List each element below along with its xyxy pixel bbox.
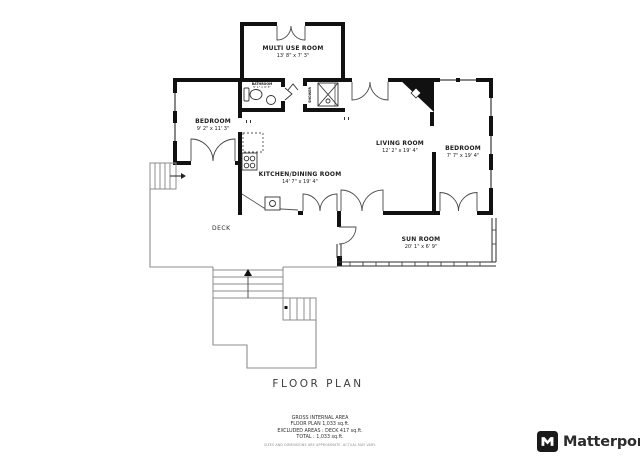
room-dims: 14' 7" x 19' 4" [259, 179, 342, 185]
shower-icon [318, 83, 338, 106]
room-name: BEDROOM [195, 118, 231, 126]
deck-outline [150, 189, 337, 368]
stairs-wide [213, 269, 283, 298]
opening-ticks [246, 117, 349, 123]
room-label-living: LIVING ROOM 12' 2" x 19' 4" [376, 140, 424, 154]
room-label-bedroom-left: BEDROOM 9' 2" x 11' 3" [195, 118, 231, 132]
room-label-kitchen: KITCHEN/DINING ROOM 14' 7" x 19' 4" [259, 171, 342, 185]
stairs-small [283, 298, 316, 320]
total-area: TOTAL : 1,033 sq.ft. [264, 435, 376, 441]
disclaimer-text: SIZES AND DIMENSIONS ARE APPROXIMATE, AC… [264, 443, 376, 447]
kitchen-bay [242, 194, 298, 210]
room-name: MULTI USE ROOM [262, 45, 323, 53]
room-dims: 12' 2" x 19' 4" [376, 148, 424, 154]
stove-icon [242, 153, 257, 170]
room-label-deck: DECK [212, 225, 231, 232]
stairs-left [150, 163, 186, 189]
room-dims: 7' 7" x 19' 4" [445, 153, 481, 159]
sink-icon [267, 96, 276, 105]
room-name: KITCHEN/DINING ROOM [259, 171, 342, 179]
room-name: LIVING ROOM [376, 140, 424, 148]
room-name: SUN ROOM [402, 236, 441, 244]
room-dims: 9' 2" x 11' 3" [195, 126, 231, 132]
room-label-bedroom-right: BEDROOM 7' 7" x 19' 4" [445, 145, 481, 159]
kitchen-island-outline [243, 133, 263, 152]
fireplace-icon [398, 78, 434, 112]
matterport-wordmark: Matterport [563, 434, 640, 450]
room-dims: 5' 1" x 4' 3" [252, 86, 273, 90]
floor-plan-image: MULTI USE ROOM 13' 8" x 7' 3" BEDROOM 9'… [0, 0, 640, 457]
matterport-logo: Matterport [537, 431, 640, 452]
room-name: BEDROOM [445, 145, 481, 153]
area-summary: GROSS INTERNAL AREA FLOOR PLAN 1,033 sq.… [264, 416, 376, 448]
room-label-multi-use: MULTI USE ROOM 13' 8" x 7' 3" [262, 45, 323, 59]
room-label-sun-room: SUN ROOM 20' 1" x 6' 9" [402, 236, 441, 250]
page-title: FLOOR PLAN [272, 378, 363, 390]
room-dims: 20' 1" x 6' 9" [402, 244, 441, 250]
room-dims: 13' 8" x 7' 3" [262, 53, 323, 59]
matterport-icon [537, 431, 558, 452]
room-label-shower: SHOWER [308, 87, 312, 103]
toilet-icon [244, 88, 262, 101]
room-label-bathroom: BATHROOM 5' 1" x 4' 3" [252, 82, 273, 90]
